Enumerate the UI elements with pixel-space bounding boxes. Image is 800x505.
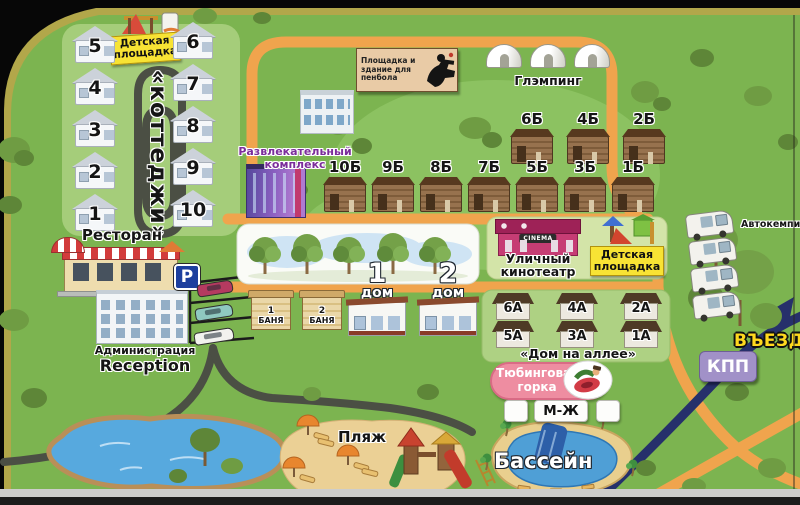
- cabin: 2Б: [621, 112, 667, 164]
- banya-row: 1БАНЯ2БАНЯ: [250, 290, 343, 330]
- wc-label: М-Ж: [543, 403, 579, 419]
- alley-house-row-top: 6А4А2А: [492, 293, 662, 320]
- cabin-row-main: 10Б9Б8Б7Б5Б3Б1Б: [322, 160, 656, 212]
- banya-body: 2БАНЯ: [302, 297, 342, 330]
- cabin: 7Б: [466, 160, 512, 212]
- big-house: 1дом: [346, 262, 408, 336]
- camper-van-icon: [692, 290, 742, 320]
- cottage-house: 6: [170, 22, 216, 60]
- alley-house-label: 1А: [620, 330, 662, 343]
- cabin: 9Б: [370, 160, 416, 212]
- playground-sign-mid-label: Детская площадка: [594, 248, 661, 273]
- cabin: 3Б: [562, 160, 608, 212]
- alley-house-label: 5А: [492, 330, 534, 343]
- glamping-tent-icon: [574, 44, 610, 68]
- checkpoint-label: КПП: [707, 357, 749, 377]
- reception-label: Reception: [70, 356, 220, 375]
- wc-sign-right: [596, 400, 620, 422]
- big-house-number: 1: [346, 262, 408, 287]
- glamping-tent-icon: [530, 44, 566, 68]
- banya-label: БАНЯ: [303, 317, 341, 325]
- cabin-icon: [324, 184, 366, 212]
- cabin-icon: [564, 184, 606, 212]
- big-house-icon: [419, 302, 477, 336]
- cottage-house: 10: [170, 190, 216, 228]
- cabin-label: 3Б: [562, 160, 608, 175]
- cabin-label: 5Б: [514, 160, 560, 175]
- entertainment-building: [246, 164, 306, 218]
- cottage-number: 4: [72, 79, 118, 98]
- cinema-label: Уличный кинотеатр: [490, 252, 586, 278]
- wc-sign-left: [504, 400, 528, 422]
- big-house-number: 2: [417, 262, 479, 287]
- alley-house-label: 6А: [492, 302, 534, 315]
- lake: [49, 416, 285, 488]
- alley-house-label: 3А: [556, 330, 598, 343]
- cottage-house: 5: [72, 26, 118, 64]
- paintball-player-icon: [421, 51, 455, 89]
- cottage-house: 9: [170, 148, 216, 186]
- cottage-column-left: 54321: [72, 26, 118, 232]
- entertainment-label: Развлекательный комплекс: [234, 146, 356, 171]
- rv-column: [686, 212, 740, 320]
- checkpoint-sign: КПП: [699, 351, 757, 382]
- cottage-number: 3: [72, 121, 118, 140]
- cottage-house: 8: [170, 106, 216, 144]
- cabin-icon: [420, 184, 462, 212]
- cabin-icon: [468, 184, 510, 212]
- cottage-house: 7: [170, 64, 216, 102]
- glamping-label: Глэмпинг: [492, 73, 604, 88]
- cabin-label: 2Б: [621, 112, 667, 127]
- big-house-row: 1дом2дом: [346, 262, 479, 336]
- cabin: 1Б: [610, 160, 656, 212]
- cottage-house: 2: [72, 152, 118, 190]
- resort-map: Детская площадка 54321 678910 «коттеджи»…: [0, 0, 800, 505]
- cottage-number: 6: [170, 33, 216, 52]
- cottages-vertical-label: «коттеджи»: [145, 55, 171, 255]
- cabin-label: 6Б: [509, 112, 555, 127]
- alley-house-label: 4А: [556, 302, 598, 315]
- restaurant-building: [64, 252, 178, 292]
- glamping-tents: [486, 44, 610, 68]
- cottage-column-right: 678910: [170, 22, 216, 228]
- cabin-label: 1Б: [610, 160, 656, 175]
- beach-label: Пляж: [338, 428, 386, 446]
- banya-label: БАНЯ: [252, 317, 290, 325]
- camper-van-icon: [690, 263, 740, 293]
- banya: 1БАНЯ: [250, 290, 292, 330]
- cottage-number: 2: [72, 163, 118, 182]
- alley-house-row-bottom: 5А3А1А: [492, 321, 662, 348]
- banya-body: 1БАНЯ: [251, 297, 291, 330]
- wc-sign: М-Ж: [534, 400, 588, 422]
- alley-house: 1А: [620, 321, 662, 348]
- cabin: 5Б: [514, 160, 560, 212]
- cabin-icon: [516, 184, 558, 212]
- cottage-house: 3: [72, 110, 118, 148]
- cottage-number: 8: [170, 117, 216, 136]
- parking-sign-letter: P: [181, 267, 193, 287]
- playground-sign-mid: Детская площадка: [590, 246, 664, 276]
- cabin-label: 7Б: [466, 160, 512, 175]
- alley-house: 6А: [492, 293, 534, 320]
- office-building: [300, 90, 354, 134]
- cabin-label: 9Б: [370, 160, 416, 175]
- playground-mid-icon: [598, 214, 660, 246]
- alley-house-label: 2А: [620, 302, 662, 315]
- cottage-house: 4: [72, 68, 118, 106]
- paintball-sign-label: Площадка и здание для пенбола: [357, 57, 421, 83]
- pool-label: Бассейн: [494, 449, 614, 473]
- cabin-label: 4Б: [565, 112, 611, 127]
- alley-house: 4А: [556, 293, 598, 320]
- camper-van-icon: [688, 236, 738, 266]
- admin-building: [96, 290, 188, 344]
- cabin-label: 8Б: [418, 160, 464, 175]
- cottage-number: 1: [72, 205, 118, 224]
- page-edge-light: [0, 489, 800, 497]
- cabin-icon: [612, 184, 654, 212]
- autocamping-label: Автокемпинг: [741, 219, 800, 230]
- cabin: 8Б: [418, 160, 464, 212]
- alley-house: 5А: [492, 321, 534, 348]
- cinema-marquee: CINEMA: [519, 234, 556, 243]
- big-house: 2дом: [417, 262, 479, 336]
- page-edge-dark: [0, 497, 800, 505]
- paintball-sign: Площадка и здание для пенбола: [356, 48, 458, 92]
- cottage-number: 10: [170, 201, 216, 220]
- admin-label-block: Администрация Reception: [70, 344, 220, 375]
- camper-van-icon: [685, 209, 735, 239]
- cottage-number: 5: [72, 37, 118, 56]
- cabin: 6Б: [509, 112, 555, 164]
- banya: 2БАНЯ: [301, 290, 343, 330]
- entrance-label: ВЪЕЗД: [734, 331, 800, 351]
- tubing-icon: [562, 356, 614, 402]
- big-house-icon: [348, 302, 406, 336]
- cabin: 4Б: [565, 112, 611, 164]
- cottage-number: 7: [170, 75, 216, 94]
- glamping-tent-icon: [486, 44, 522, 68]
- cabin-row-top: 6Б4Б2Б: [509, 112, 667, 164]
- cabin-icon: [372, 184, 414, 212]
- alley-house: 3А: [556, 321, 598, 348]
- alley-house: 2А: [620, 293, 662, 320]
- cottage-number: 9: [170, 159, 216, 178]
- map-right-edge: [793, 15, 795, 489]
